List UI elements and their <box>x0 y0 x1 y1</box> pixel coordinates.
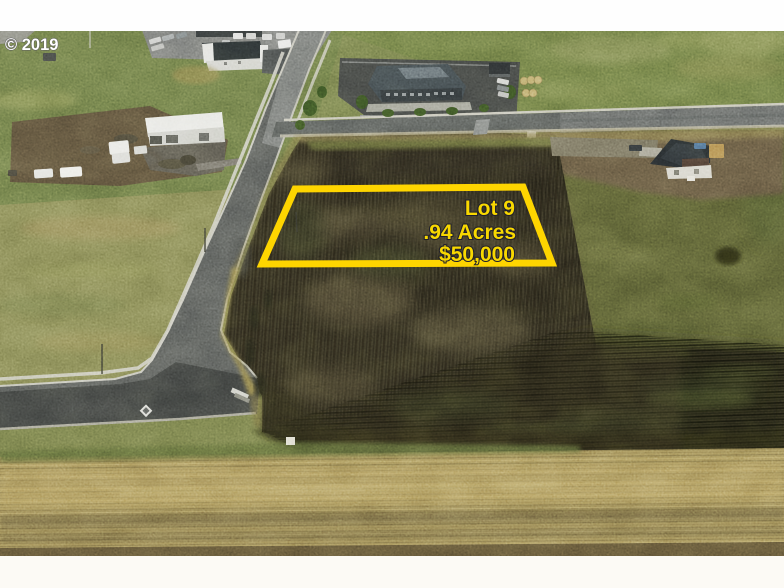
svg-text:$50,000: $50,000 <box>439 243 515 266</box>
svg-text:Lot 9: Lot 9 <box>465 197 515 220</box>
svg-text:.94 Acres: .94 Acres <box>423 221 516 244</box>
svg-text:© 2019: © 2019 <box>5 36 58 54</box>
